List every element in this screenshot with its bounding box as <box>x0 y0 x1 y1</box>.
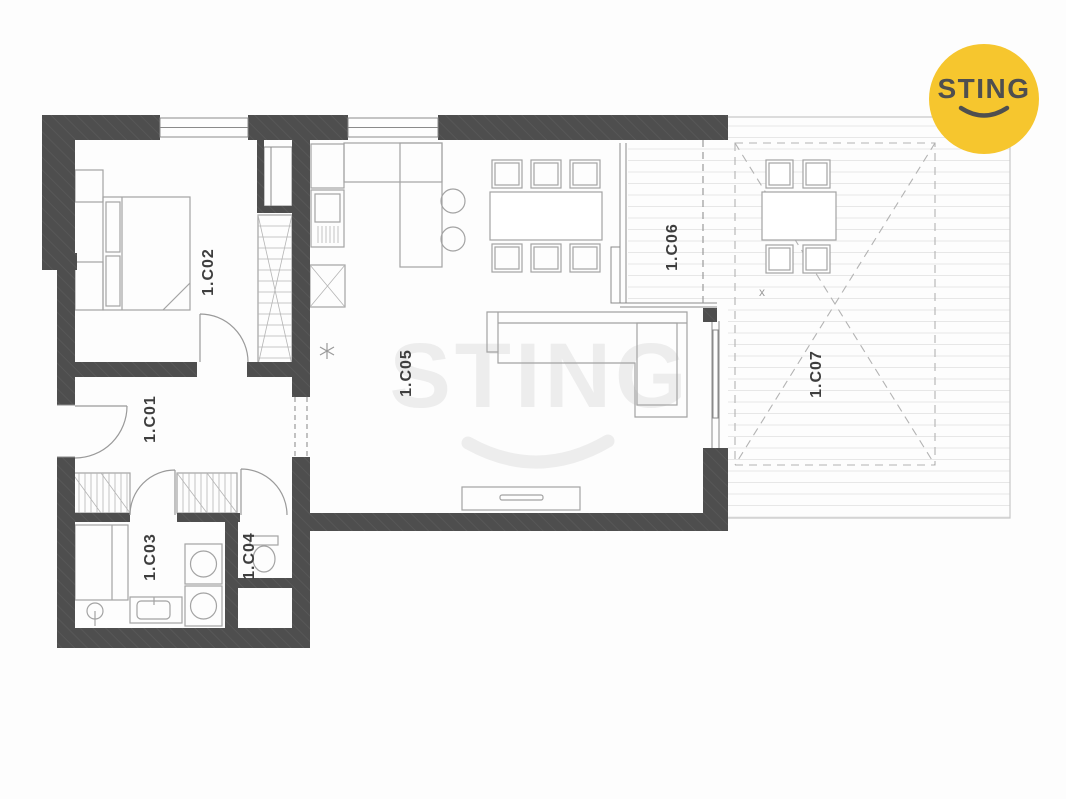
floor-plan-drawing: x STING <box>0 0 1066 799</box>
terrace-cross-marker: x <box>759 285 765 299</box>
room-label-1c06: 1.C06 <box>664 223 681 271</box>
room-label-1c02: 1.C02 <box>200 248 217 296</box>
room-label-1c03: 1.C03 <box>142 533 159 581</box>
sting-logo: STING <box>929 44 1039 154</box>
terrace-table <box>762 192 836 240</box>
dining-table <box>490 192 602 240</box>
room-label-1c07: 1.C07 <box>808 350 825 398</box>
logo-text: STING <box>937 73 1030 104</box>
floor-plan: x STING <box>0 0 1066 799</box>
room-label-1c01: 1.C01 <box>142 395 159 443</box>
room-label-1c04: 1.C04 <box>241 532 258 580</box>
room-label-1c05: 1.C05 <box>398 349 415 397</box>
watermark-text: STING <box>389 325 690 427</box>
